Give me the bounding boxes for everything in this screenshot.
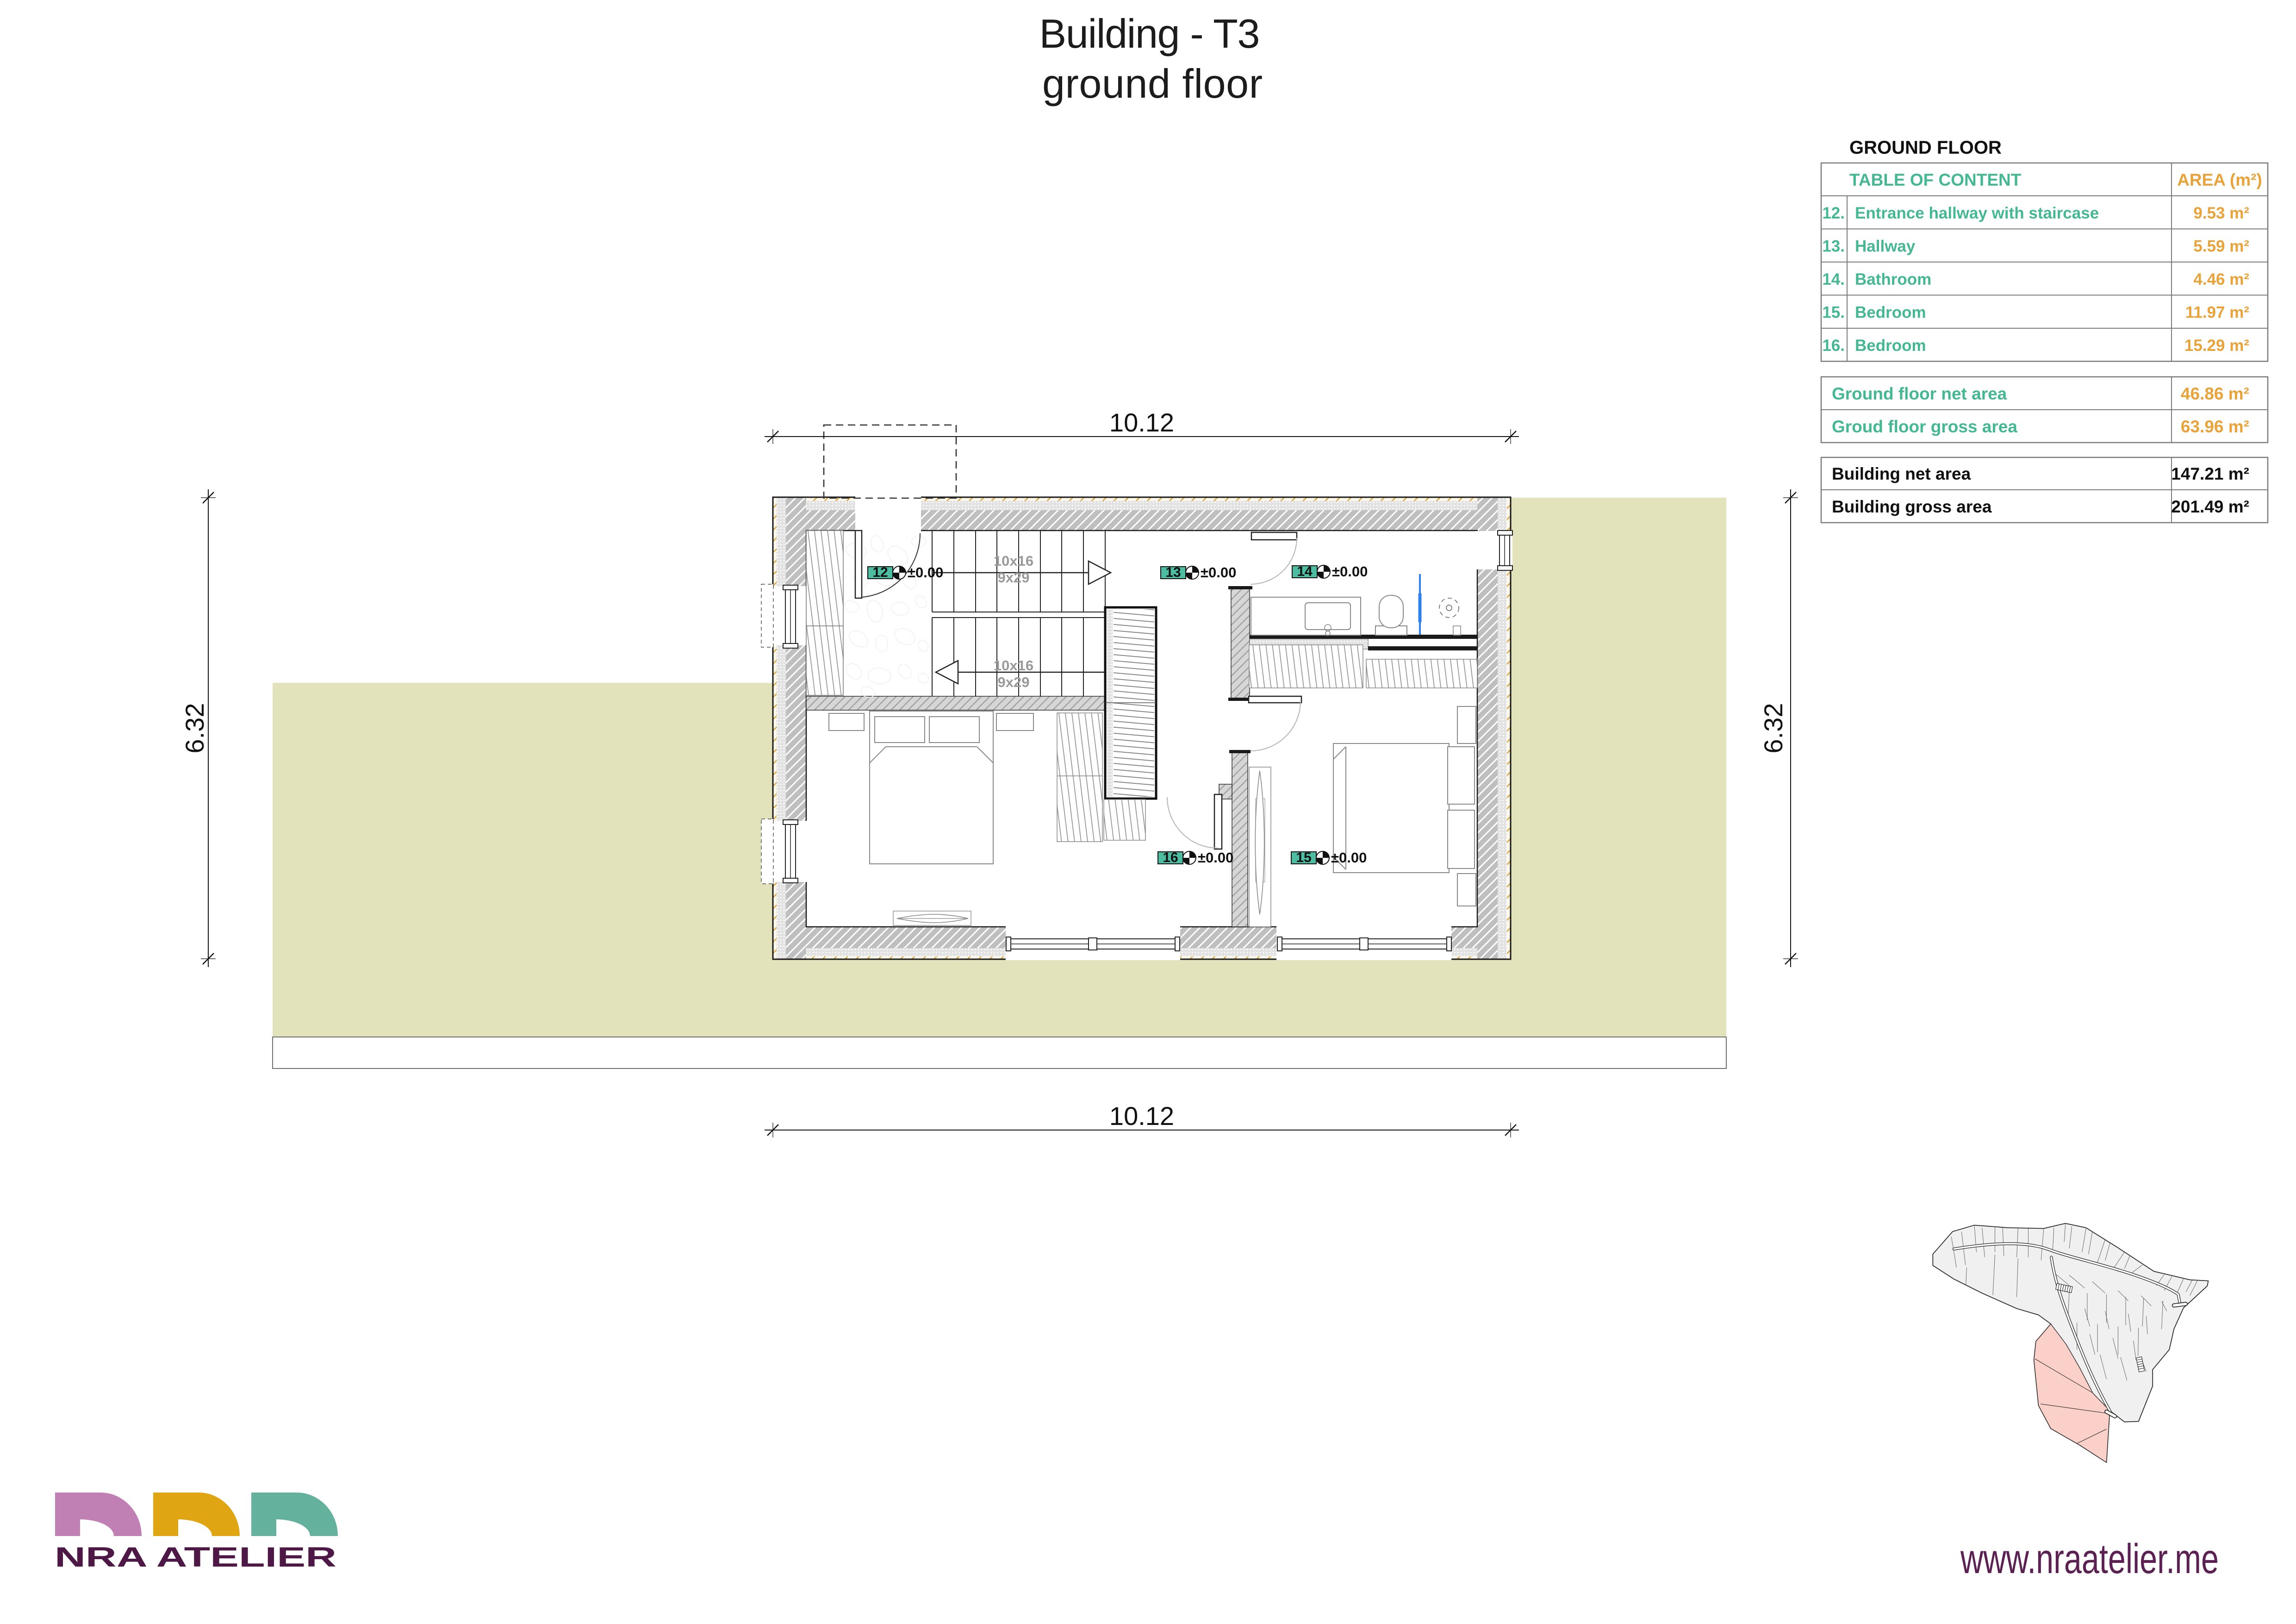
- svg-text:www.nraatelier.me: www.nraatelier.me: [1960, 1536, 2219, 1582]
- svg-text:16.: 16.: [1822, 337, 1845, 355]
- svg-text:15.: 15.: [1822, 303, 1845, 321]
- svg-text:46.86 m²: 46.86 m²: [2181, 384, 2249, 403]
- svg-text:11.97 m²: 11.97 m²: [2185, 303, 2249, 321]
- svg-text:9.53 m²: 9.53 m²: [2193, 204, 2249, 222]
- svg-text:4.46 m²: 4.46 m²: [2193, 270, 2249, 288]
- svg-text:Entrance hallway with staircas: Entrance hallway with staircase: [1855, 204, 2099, 222]
- svg-text:±0.00: ±0.00: [1198, 849, 1233, 866]
- svg-text:±0.00: ±0.00: [1332, 563, 1368, 580]
- svg-text:9x29: 9x29: [998, 569, 1030, 586]
- svg-text:5.59 m²: 5.59 m²: [2193, 237, 2249, 255]
- svg-text:Bathroom: Bathroom: [1855, 270, 1931, 288]
- svg-text:ground floor: ground floor: [1042, 61, 1263, 106]
- svg-text:±0.00: ±0.00: [908, 564, 943, 581]
- svg-text:12.: 12.: [1822, 204, 1845, 222]
- svg-text:Ground floor net area: Ground floor net area: [1832, 384, 2007, 403]
- svg-text:9x29: 9x29: [998, 674, 1030, 690]
- svg-text:AREA (m²): AREA (m²): [2177, 170, 2262, 189]
- svg-text:Bedroom: Bedroom: [1855, 303, 1926, 321]
- svg-text:TABLE OF CONTENT: TABLE OF CONTENT: [1849, 170, 2022, 189]
- svg-text:10.12: 10.12: [1109, 408, 1174, 437]
- svg-text:Bedroom: Bedroom: [1855, 337, 1926, 355]
- svg-text:14: 14: [1297, 564, 1313, 579]
- svg-text:6.32: 6.32: [1759, 703, 1788, 754]
- svg-text:147.21 m²: 147.21 m²: [2171, 464, 2249, 483]
- svg-text:GROUND FLOOR: GROUND FLOOR: [1849, 137, 2002, 158]
- svg-text:15.29 m²: 15.29 m²: [2184, 337, 2249, 355]
- svg-text:16: 16: [1163, 850, 1178, 865]
- svg-text:6.32: 6.32: [180, 703, 209, 754]
- svg-text:Groud floor gross area: Groud floor gross area: [1832, 417, 2017, 436]
- svg-text:±0.00: ±0.00: [1201, 564, 1236, 581]
- svg-text:10.12: 10.12: [1109, 1101, 1174, 1131]
- svg-text:12: 12: [872, 565, 888, 580]
- svg-text:±0.00: ±0.00: [1331, 849, 1367, 866]
- svg-text:201.49 m²: 201.49 m²: [2171, 497, 2249, 516]
- svg-text:Building - T3: Building - T3: [1039, 11, 1260, 56]
- svg-text:Building gross area: Building gross area: [1832, 497, 1992, 516]
- svg-text:Building net area: Building net area: [1832, 464, 1971, 483]
- svg-text:63.96 m²: 63.96 m²: [2181, 417, 2249, 436]
- svg-text:Hallway: Hallway: [1855, 237, 1916, 255]
- svg-text:13: 13: [1165, 565, 1181, 580]
- svg-text:10x16: 10x16: [994, 553, 1033, 569]
- svg-text:13.: 13.: [1822, 237, 1845, 255]
- svg-text:10x16: 10x16: [994, 657, 1033, 674]
- svg-text:14.: 14.: [1822, 270, 1845, 288]
- svg-text:15: 15: [1296, 850, 1311, 865]
- svg-text:NRA ATELIER: NRA ATELIER: [55, 1542, 336, 1573]
